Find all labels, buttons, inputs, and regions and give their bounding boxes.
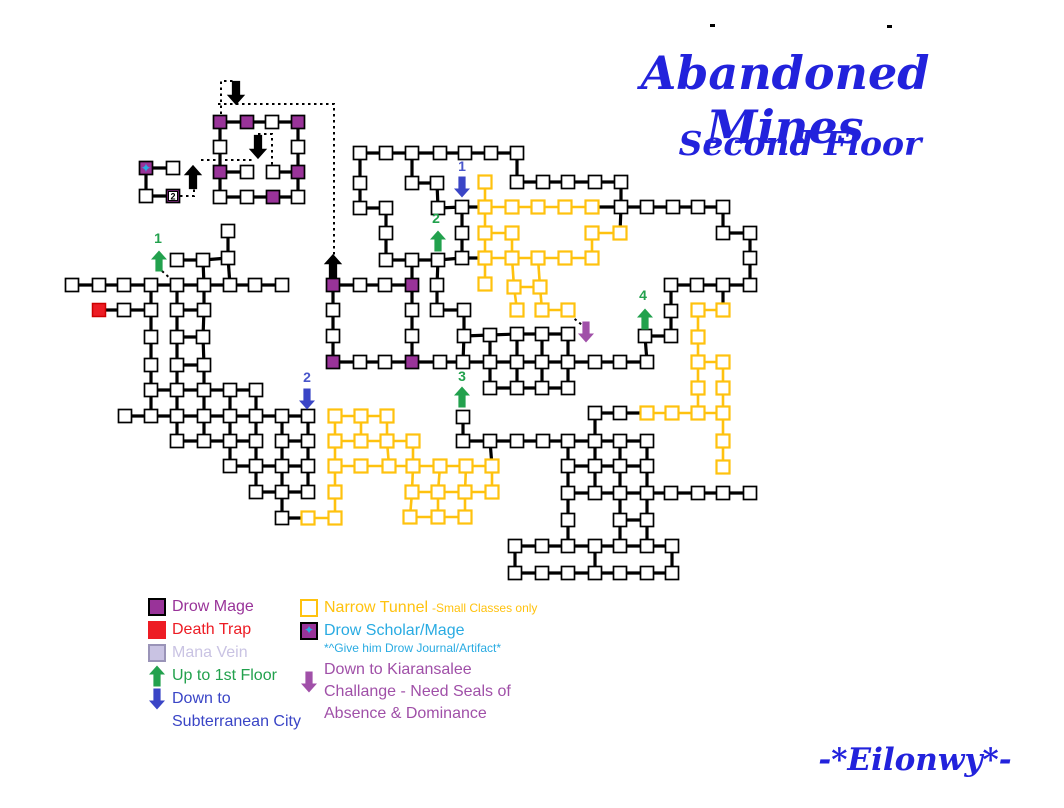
map-room-w (589, 356, 602, 369)
map-room-w (241, 166, 254, 179)
map-room-w (197, 254, 210, 267)
map-room-w (562, 487, 575, 500)
map-room-w (537, 176, 550, 189)
map-room-y (383, 460, 396, 473)
map-room-w (214, 191, 227, 204)
map-room-w (198, 410, 211, 423)
up-arrow-icon (430, 231, 446, 252)
map-room-w (509, 567, 522, 580)
map-room-w (614, 435, 627, 448)
map-room-w (406, 254, 419, 267)
legend-label: Death Trap (172, 621, 251, 639)
map-room-w (537, 435, 550, 448)
legend-item-mana-vein: Mana Vein (148, 644, 301, 662)
map-room-w (93, 279, 106, 292)
map-room-w (458, 304, 471, 317)
map-room-w (589, 487, 602, 500)
legend-square-swatch (148, 598, 166, 616)
map-room-w (406, 304, 419, 317)
legend-label: Challange - Need Seals of (324, 681, 511, 703)
map-room-w (198, 304, 211, 317)
map-room-w (249, 279, 262, 292)
map-room-w (717, 201, 730, 214)
map-room-w (511, 328, 524, 341)
map-room-w (615, 201, 628, 214)
up-arrow-icon (637, 309, 653, 330)
map-room-w (171, 384, 184, 397)
map-room-w (589, 567, 602, 580)
map-room-w (562, 356, 575, 369)
legend-arrow-swatch (148, 665, 166, 687)
map-room-w (198, 359, 211, 372)
map-room-w (484, 435, 497, 448)
map-room-w (614, 567, 627, 580)
map-room-y (692, 331, 705, 344)
map-room-y (432, 486, 445, 499)
map-room-w (641, 201, 654, 214)
legend-square-swatch (300, 599, 318, 617)
map-room-w (484, 356, 497, 369)
legend-column-2: Narrow Tunnel -Small Classes only ✦ Drow… (300, 599, 570, 730)
map-room-w (432, 254, 445, 267)
map-room-y (381, 435, 394, 448)
map-room-w (380, 227, 393, 240)
map-room-w (431, 177, 444, 190)
map-room-w (406, 147, 419, 160)
drow-scholar-star-icon: ✦ (141, 161, 152, 176)
map-room-w (456, 201, 469, 214)
map-room-w (197, 331, 210, 344)
up-arrow-icon (324, 254, 342, 278)
stray-mark (710, 24, 715, 27)
up-arrow-icon (454, 387, 470, 408)
map-room-w (266, 116, 279, 129)
map-room-w (744, 279, 757, 292)
map-room-w (485, 147, 498, 160)
map-room-w (615, 176, 628, 189)
map-room-y (479, 201, 492, 214)
map-room-y (586, 227, 599, 240)
legend-square-swatch (148, 644, 166, 662)
map-room-w (614, 487, 627, 500)
legend-item-drow-mage: Drow Mage (148, 598, 301, 616)
map-room-w (276, 435, 289, 448)
map-room-w (354, 147, 367, 160)
map-room-p (406, 356, 419, 369)
map-room-y (329, 486, 342, 499)
map-room-w (536, 567, 549, 580)
map-room-w (717, 487, 730, 500)
map-room-w (589, 407, 602, 420)
map-room-w (276, 410, 289, 423)
map-room-p (292, 116, 305, 129)
map-room-y (460, 460, 473, 473)
map-room-w (145, 384, 158, 397)
legend-label: Up to 1st Floor (172, 667, 277, 685)
map-room-w (198, 435, 211, 448)
map-room-y (407, 435, 420, 448)
map-room-p (214, 166, 227, 179)
map-room-w (250, 460, 263, 473)
map-room-w (717, 279, 730, 292)
map-room-w (171, 435, 184, 448)
map-room-w (665, 487, 678, 500)
map-room-w (145, 279, 158, 292)
map-room-w (224, 279, 237, 292)
map-room-w (641, 356, 654, 369)
map-room-w (171, 254, 184, 267)
legend-label: Mana Vein (172, 644, 248, 662)
map-room-y (459, 511, 472, 524)
map-room-y (717, 435, 730, 448)
map-room-w (589, 460, 602, 473)
legend-label: Absence & Dominance (324, 703, 511, 725)
map-room-y (692, 382, 705, 395)
map-room-p (327, 356, 340, 369)
map-room-y (666, 407, 679, 420)
map-room-w (241, 191, 254, 204)
map-room-y (506, 227, 519, 240)
down-arrow-icon (454, 177, 470, 198)
down-arrow-icon (299, 389, 315, 410)
legend-label: Down to Kiaransalee (324, 659, 511, 681)
map-room-w (224, 384, 237, 397)
map-room-p (292, 166, 305, 179)
map-room-w (66, 279, 79, 292)
map-room-w (666, 540, 679, 553)
map-room-w (717, 227, 730, 240)
exit-number-label: 1 (458, 158, 466, 174)
up-arrow-icon (151, 251, 167, 272)
map-room-w (562, 460, 575, 473)
map-room-w (641, 435, 654, 448)
map-room-w (692, 201, 705, 214)
map-room-w (431, 279, 444, 292)
map-room-y (479, 176, 492, 189)
map-room-w (744, 227, 757, 240)
map-room-y (717, 382, 730, 395)
map-room-w (641, 540, 654, 553)
map-room-w (276, 512, 289, 525)
map-room-w (250, 410, 263, 423)
map-room-y (692, 356, 705, 369)
legend-item-drow-scholar: ✦ Drow Scholar/Mage (300, 622, 570, 640)
map-room-y (479, 252, 492, 265)
map-room-w (406, 177, 419, 190)
map-room-y (506, 252, 519, 265)
map-room-w (354, 177, 367, 190)
map-room-w (456, 227, 469, 240)
legend-sublabel: -Small Classes only (432, 601, 537, 615)
map-room-w (457, 435, 470, 448)
map-room-w (536, 356, 549, 369)
map-room-w (562, 435, 575, 448)
map-room-w (456, 252, 469, 265)
map-room-w (276, 279, 289, 292)
map-room-w (145, 410, 158, 423)
map-room-y (717, 461, 730, 474)
exit-number-label: 1 (154, 230, 162, 246)
map-room-w (224, 410, 237, 423)
map-room-w (354, 279, 367, 292)
map-room-y (586, 201, 599, 214)
map-room-y (407, 460, 420, 473)
map-room-w (562, 540, 575, 553)
legend-item-narrow-tunnel: Narrow Tunnel -Small Classes only (300, 599, 570, 617)
map-room-w (744, 487, 757, 500)
mana-vein-icon (148, 644, 166, 662)
map-room-w (379, 356, 392, 369)
up-arrow-icon (184, 165, 202, 189)
legend-item-up-to-1st-floor: Up to 1st Floor (148, 667, 301, 685)
map-room-y (302, 512, 315, 525)
map-room-y (641, 407, 654, 420)
map-room-w (171, 410, 184, 423)
map-room-w (665, 305, 678, 318)
map-room-w (198, 384, 211, 397)
map-room-w (145, 304, 158, 317)
map-room-w (641, 460, 654, 473)
map-room-w (167, 162, 180, 175)
author-signature: -*Eilonwy*- (790, 742, 1040, 778)
map-room-w (589, 540, 602, 553)
map-room-w (484, 382, 497, 395)
map-room-w (214, 141, 227, 154)
map-room-y (486, 486, 499, 499)
map-room-w (171, 304, 184, 317)
down-arrow-icon (148, 690, 166, 708)
map-room-w (406, 330, 419, 343)
down-arrow-icon (249, 135, 267, 159)
map-room-w (327, 304, 340, 317)
map-room-w (145, 359, 158, 372)
map-room-w (119, 410, 132, 423)
legend-column-1: Drow Mage Death Trap Mana Vein Up to 1st… (148, 598, 301, 731)
map-room-w (327, 330, 340, 343)
map-room-w (140, 190, 153, 203)
map-room-y (562, 304, 575, 317)
map-room-w (250, 486, 263, 499)
map-room-y (479, 227, 492, 240)
map-room-w (171, 331, 184, 344)
map-room-y (381, 410, 394, 423)
drow-mage-icon (148, 598, 166, 616)
map-room-w (222, 225, 235, 238)
map-room-w (250, 435, 263, 448)
map-room-y (432, 511, 445, 524)
map-room-w (267, 166, 280, 179)
map-room-w (222, 252, 235, 265)
map-room-y (532, 201, 545, 214)
map-room-w (302, 486, 315, 499)
map-room-w (641, 487, 654, 500)
map-room-w (380, 202, 393, 215)
legend-label: Down to (172, 690, 231, 708)
map-room-p (241, 116, 254, 129)
map-room-y (329, 460, 342, 473)
map-room-y (536, 304, 549, 317)
map-room-y (559, 252, 572, 265)
map-room-w (380, 147, 393, 160)
legend-multiline: Down to Kiaransalee Challange - Need Sea… (324, 659, 511, 725)
map-room-w (224, 460, 237, 473)
map-room-w (589, 435, 602, 448)
map-room-y (329, 512, 342, 525)
map-room-w (511, 435, 524, 448)
legend-arrow-swatch (300, 671, 318, 693)
map-room-y (586, 252, 599, 265)
map-room-w (641, 514, 654, 527)
legend-label: Drow Scholar/Mage (324, 622, 465, 640)
map-room-w (614, 407, 627, 420)
map-room-w (292, 141, 305, 154)
map-room-w (354, 356, 367, 369)
map-room-w (641, 567, 654, 580)
map-room-w (562, 514, 575, 527)
map-room-y (717, 407, 730, 420)
map-room-y (534, 281, 547, 294)
map-room-p (214, 116, 227, 129)
map-room-w (302, 410, 315, 423)
map-room-w (509, 540, 522, 553)
map-room-y (355, 410, 368, 423)
legend-note: *^Give him Drow Journal/Artifact* (324, 641, 570, 655)
map-room-w (431, 304, 444, 317)
map-room-w (250, 384, 263, 397)
exit-number-label: 2 (303, 369, 311, 385)
map-room-w (354, 202, 367, 215)
map-room-w (458, 330, 471, 343)
map-room-y (717, 304, 730, 317)
legend-label-line2: Subterranean City (172, 713, 301, 731)
map-room-w (511, 176, 524, 189)
map-room-w (171, 279, 184, 292)
map-room-w (511, 382, 524, 395)
map-room-w (691, 279, 704, 292)
map-room-w (614, 460, 627, 473)
map-room-w (692, 487, 705, 500)
down-arrow-icon (227, 81, 245, 105)
map-room-r (93, 304, 106, 317)
map-room-w (434, 356, 447, 369)
page-subtitle: Second Floor (650, 124, 950, 163)
map-room-w (276, 486, 289, 499)
map-room-w (379, 279, 392, 292)
exit-number-label: 4 (639, 287, 647, 303)
up-arrow-icon (148, 667, 166, 685)
map-room-w (536, 540, 549, 553)
map-room-y (329, 435, 342, 448)
map-room-w (118, 279, 131, 292)
map-room-number: 2 (170, 192, 175, 202)
map-room-w (171, 359, 184, 372)
map-room-y (614, 227, 627, 240)
legend-item-death-trap: Death Trap (148, 621, 301, 639)
map-room-w (562, 382, 575, 395)
narrow-tunnel-icon (300, 599, 318, 617)
drow-scholar-icon: ✦ (300, 622, 318, 640)
map-room-p (267, 191, 280, 204)
map-room-y (434, 460, 447, 473)
stray-mark (887, 25, 892, 28)
map-dotted-passage (180, 188, 194, 196)
death-trap-icon (148, 621, 166, 639)
map-room-w (562, 567, 575, 580)
kiaransalee-arrow-icon (300, 673, 318, 691)
legend-square-swatch (148, 621, 166, 639)
map-room-w (292, 191, 305, 204)
legend-label: Drow Mage (172, 598, 254, 616)
map-room-w (667, 201, 680, 214)
map-room-w (276, 460, 289, 473)
map-room-y (479, 278, 492, 291)
map-room-w (665, 330, 678, 343)
map-room-w (145, 331, 158, 344)
map-page: { "title": "Abandoned Mines", "subtitle"… (0, 0, 1064, 808)
map-room-w (224, 435, 237, 448)
map-room-w (614, 356, 627, 369)
map-room-w (639, 330, 652, 343)
map-room-y (406, 486, 419, 499)
map-room-w (118, 304, 131, 317)
map-room-y (355, 460, 368, 473)
map-room-w (666, 567, 679, 580)
map-room-w (614, 540, 627, 553)
legend-label: Narrow Tunnel (324, 599, 428, 617)
legend-item-kiaransalee: Down to Kiaransalee Challange - Need Sea… (300, 659, 570, 725)
map-room-w (484, 329, 497, 342)
map-room-w (614, 514, 627, 527)
map-room-y (508, 281, 521, 294)
map-room-y (404, 511, 417, 524)
map-room-w (198, 279, 211, 292)
map-room-p (327, 279, 340, 292)
map-room-w (457, 356, 470, 369)
map-room-y (532, 252, 545, 265)
map-room-w (562, 328, 575, 341)
map-room-w (302, 460, 315, 473)
map-room-y (459, 486, 472, 499)
map-room-p (406, 279, 419, 292)
map-room-y (355, 435, 368, 448)
map-room-w (536, 382, 549, 395)
map-room-y (559, 201, 572, 214)
map-room-w (457, 411, 470, 424)
exit-number-label: 3 (458, 368, 466, 384)
map-room-w (434, 147, 447, 160)
legend-arrow-swatch (148, 688, 166, 710)
map-room-w (302, 435, 315, 448)
map-room-y (511, 304, 524, 317)
map-room-y (717, 356, 730, 369)
map-room-y (692, 407, 705, 420)
map-room-y (486, 460, 499, 473)
legend-square-swatch: ✦ (300, 622, 318, 640)
map-room-w (665, 279, 678, 292)
map-room-w (562, 176, 575, 189)
map-room-y (692, 304, 705, 317)
map-room-w (511, 147, 524, 160)
exit-number-label: 2 (432, 210, 440, 226)
map-room-y (329, 410, 342, 423)
map-room-y (506, 201, 519, 214)
map-room-w (511, 356, 524, 369)
map-room-w (536, 328, 549, 341)
map-room-w (589, 176, 602, 189)
map-room-w (744, 252, 757, 265)
map-room-w (380, 254, 393, 267)
legend-item-down-to-subterranean: Down to (148, 690, 301, 708)
